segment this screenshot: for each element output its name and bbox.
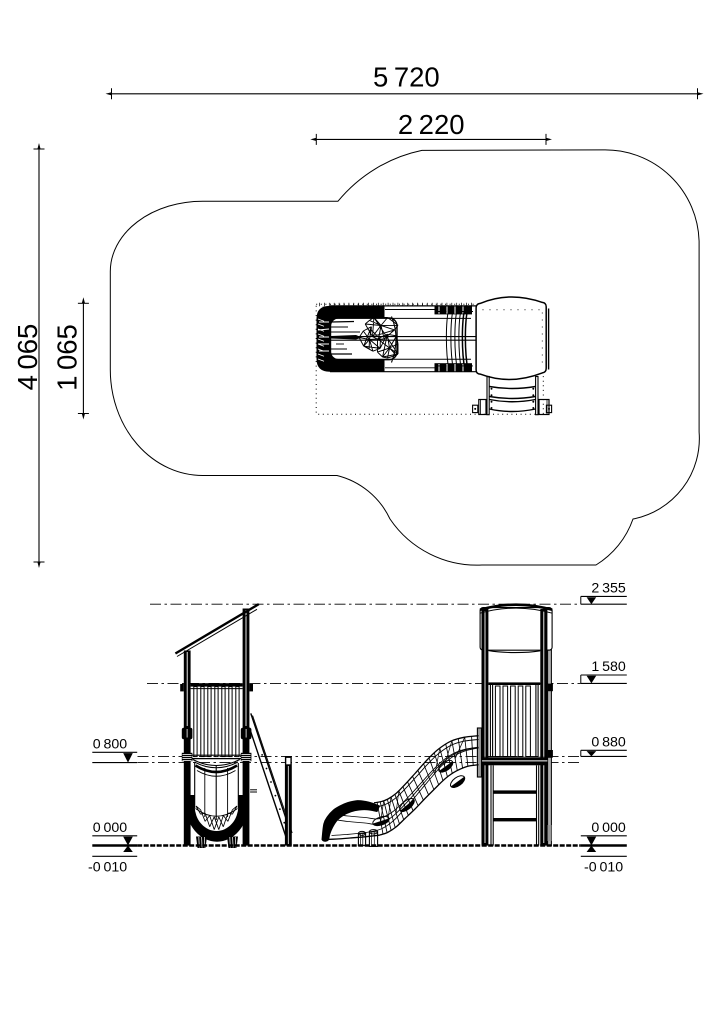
svg-text:0 000: 0 000 (93, 820, 128, 836)
svg-text:0 800: 0 800 (93, 737, 128, 753)
svg-text:1 065: 1 065 (51, 324, 82, 391)
svg-text:2 355: 2 355 (591, 581, 626, 597)
svg-text:0 880: 0 880 (591, 735, 626, 751)
svg-text:1 580: 1 580 (591, 659, 626, 675)
svg-text:5 720: 5 720 (373, 62, 440, 93)
svg-text:-0 010: -0 010 (88, 860, 127, 876)
svg-text:4 065: 4 065 (12, 324, 43, 391)
svg-text:-0 010: -0 010 (584, 860, 623, 876)
svg-text:0 000: 0 000 (591, 820, 626, 836)
svg-text:2 220: 2 220 (398, 109, 465, 140)
